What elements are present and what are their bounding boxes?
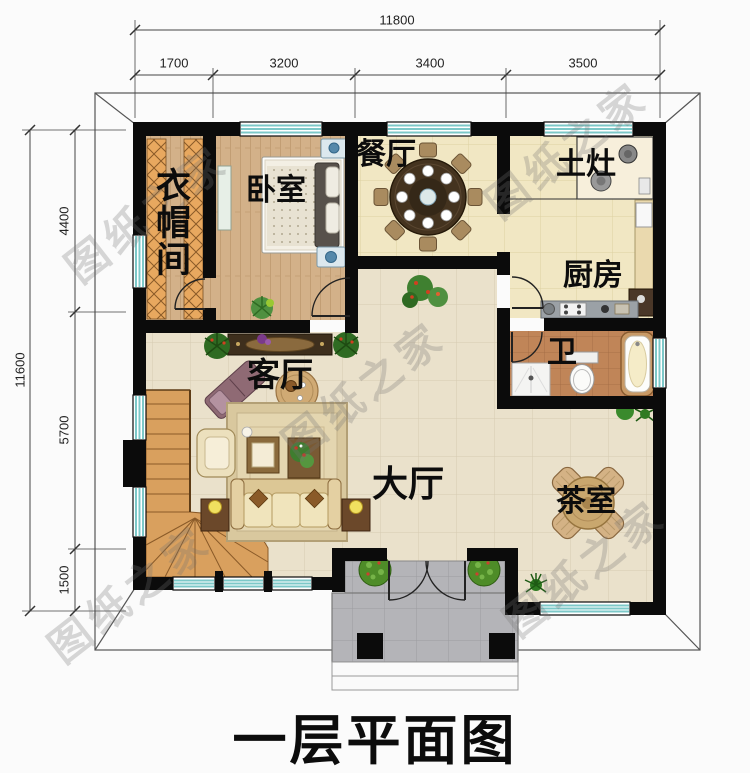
room-label-hall: 大厅 — [372, 466, 444, 502]
window — [223, 577, 264, 590]
room-label-earthen-stove: 土灶 — [556, 150, 616, 180]
room-label-kitchen: 厨房 — [563, 261, 623, 291]
page-title: 一层平面图 — [0, 696, 750, 773]
porch-step — [332, 676, 518, 690]
dim-left-seg-2: 5700 — [57, 416, 72, 445]
dim-top-seg-1: 1700 — [160, 56, 189, 71]
room-label-cloakroom: 衣帽间 — [153, 167, 188, 278]
room-label-tea-room: 茶室 — [556, 487, 616, 517]
room-label-dining: 餐厅 — [356, 140, 416, 170]
dim-top-seg-2: 3200 — [270, 56, 299, 71]
bathtub — [621, 332, 654, 396]
window — [133, 487, 146, 537]
room-label-bathroom: 卫 — [547, 338, 577, 368]
window — [272, 577, 312, 590]
nightstand — [317, 247, 345, 267]
room-label-bedroom: 卧室 — [246, 176, 306, 206]
window — [133, 395, 146, 440]
dim-left-seg-1: 4400 — [57, 207, 72, 236]
dim-top-seg-4: 3500 — [569, 56, 598, 71]
armchair — [197, 429, 235, 477]
window — [240, 122, 322, 136]
nightstand — [321, 139, 347, 158]
bathroom-sink — [512, 363, 550, 396]
fridge — [636, 203, 652, 227]
kitchen-sink — [544, 304, 555, 315]
sofa-side-table — [201, 499, 229, 531]
dim-top-total: 11800 — [379, 13, 414, 28]
room-label-living: 客厅 — [247, 358, 313, 391]
dim-left-seg-3: 1500 — [57, 566, 72, 595]
porch-column — [489, 633, 515, 659]
porch-step — [332, 662, 518, 676]
porch-column — [357, 633, 383, 659]
floor-plan-canvas: 图纸之家 图纸之家 图纸之家 图纸之家 图纸之家 衣帽间 卧室 餐厅 土灶 厨房… — [0, 0, 750, 773]
stove — [560, 303, 586, 316]
sofa-side-table — [342, 499, 370, 531]
sofa — [231, 479, 341, 529]
window — [653, 338, 666, 388]
tv-cabinet — [228, 334, 332, 355]
window — [387, 122, 471, 136]
dim-left-total: 11600 — [13, 352, 28, 387]
dim-top-seg-3: 3400 — [416, 56, 445, 71]
